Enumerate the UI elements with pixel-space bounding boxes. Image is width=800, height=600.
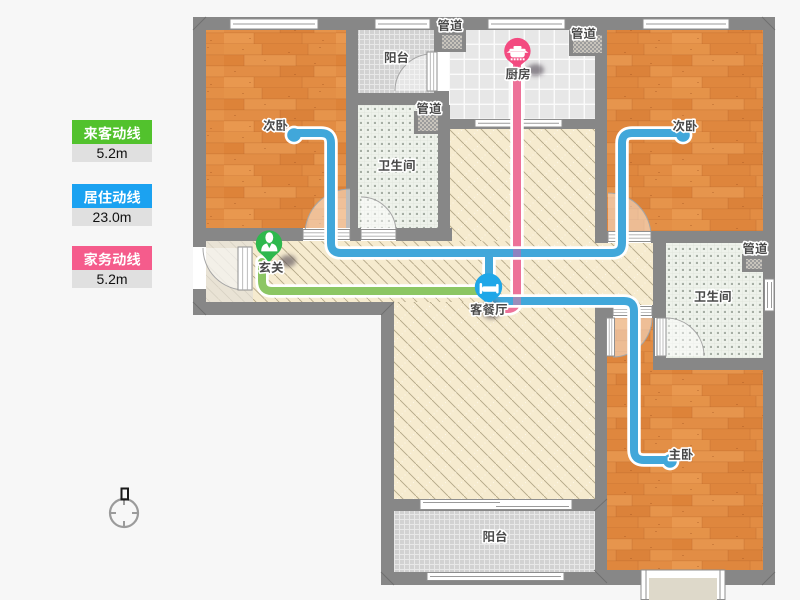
svg-text:23.0m: 23.0m [93,209,132,225]
svg-text:5.2m: 5.2m [96,145,127,161]
svg-text:5.2m: 5.2m [96,271,127,287]
